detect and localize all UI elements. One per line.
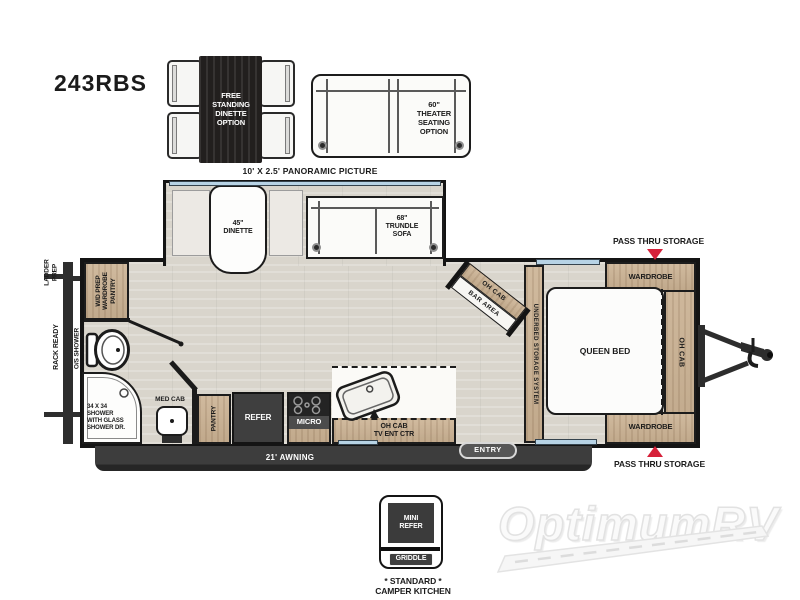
- red-arrow-down-icon: [647, 249, 663, 260]
- wardrobe-top-label: WARDROBE: [607, 271, 694, 283]
- kitchen-counter: [332, 366, 456, 418]
- rack-tick: [73, 412, 80, 417]
- cupholder-icon: [312, 243, 321, 252]
- tv-ent-ctr-label: OH CAB TV ENT CTR: [332, 420, 456, 442]
- refer-label: REFER: [234, 412, 282, 424]
- cupholder-icon: [429, 243, 438, 252]
- cupholder-icon: [318, 141, 327, 150]
- page-title: 243RBS: [54, 70, 147, 97]
- camper-kitchen-unit: MINI REFER GRIDDLE: [379, 495, 443, 569]
- griddle: GRIDDLE: [389, 553, 433, 566]
- dinette-chair: [259, 112, 295, 159]
- watermark: OptimumRV: [490, 490, 800, 595]
- trundle-sofa-label: 68" TRUNDLE SOFA: [363, 213, 441, 241]
- bedroom-window-top: [536, 259, 600, 265]
- awning-label: 21' AWNING: [238, 451, 342, 464]
- awning-band: [95, 446, 592, 471]
- free-standing-dinette-option: FREE STANDING DINETTE OPTION: [160, 52, 305, 164]
- entry-pill: ENTRY: [459, 442, 517, 459]
- rv-floorplan: OptimumRV 243RBS FREE STANDING DINETTE O…: [0, 0, 800, 600]
- queen-bed: QUEEN BED: [546, 287, 664, 415]
- pass-thru-storage-bottom-label: PASS THRU STORAGE: [607, 459, 712, 470]
- pass-thru-storage-top-label: PASS THRU STORAGE: [606, 236, 711, 247]
- bath-sink: [156, 406, 188, 436]
- panoramic-picture-label: 10' X 2.5' PANORAMIC PICTURE: [225, 165, 395, 177]
- wd-prep-label: W/D PREP WARDROBE PANTRY: [94, 263, 118, 319]
- panoramic-window: [169, 181, 441, 186]
- bed-fold-line: [661, 289, 664, 415]
- watermark-road-icon: [490, 490, 800, 595]
- micro-label: MICRO: [289, 417, 329, 428]
- ladder-prep-label: LADDER PREP: [43, 251, 60, 295]
- mini-refer: MINI REFER: [388, 503, 434, 543]
- front-oh-cab-label: OH CAB: [676, 325, 685, 381]
- rack-tick: [44, 412, 63, 417]
- rack-ready-label: RACK READY: [52, 317, 62, 377]
- dinette-label: 45" DINETTE: [203, 218, 273, 238]
- underbed-label: UNDERBED STORAGE SYSTEM: [530, 269, 538, 439]
- hitch-icon: [698, 325, 773, 387]
- camper-kitchen-caption: * STANDARD * CAMPER KITCHEN: [343, 575, 483, 597]
- stove-top: [289, 394, 329, 416]
- red-arrow-up-icon: [647, 446, 663, 457]
- wardrobe-bottom-label: WARDROBE: [607, 421, 694, 433]
- camper-kitchen-divider: [381, 547, 440, 551]
- dinette-chair: [259, 60, 295, 107]
- dinette-bench: [269, 190, 303, 256]
- bedroom-window-bottom: [535, 439, 597, 445]
- theater-option-label: 60" THEATER SEATING OPTION: [401, 98, 467, 140]
- dinette-chair: [167, 112, 203, 159]
- shower-label: 34 X 34 SHOWER WITH GLASS SHOWER DR.: [87, 399, 139, 437]
- dinette-option-label: FREE STANDING DINETTE OPTION: [201, 88, 261, 132]
- pantry-label: PANTRY: [210, 397, 219, 441]
- rack-tick: [73, 276, 80, 281]
- med-cab-label: MED CAB: [146, 395, 194, 405]
- theater-seating-option: 60" THEATER SEATING OPTION: [311, 74, 471, 158]
- dinette-chair: [167, 60, 203, 107]
- bike-rack-bar: [63, 262, 73, 444]
- cupholder-icon: [455, 141, 464, 150]
